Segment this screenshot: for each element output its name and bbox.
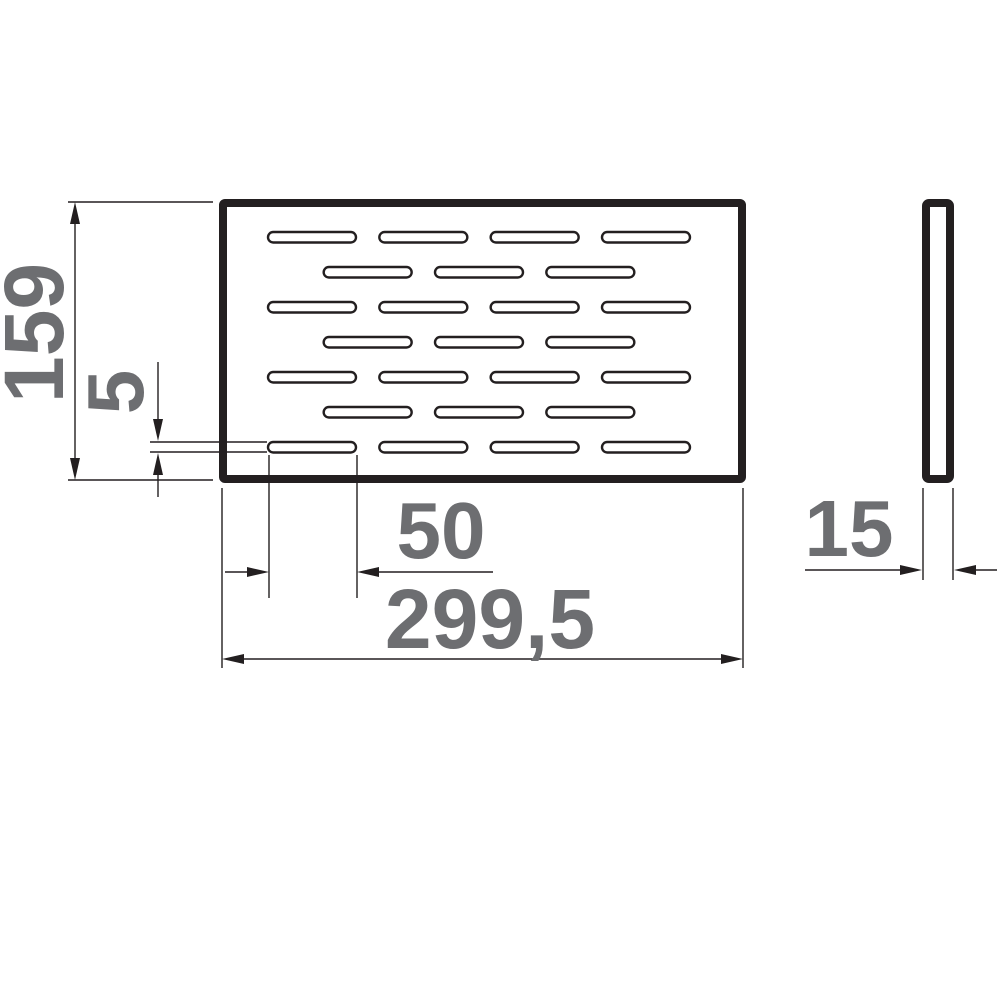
slot <box>602 302 690 313</box>
slot <box>324 267 412 278</box>
front-view <box>223 203 742 479</box>
slot <box>268 232 356 243</box>
slot <box>546 337 634 348</box>
arrowhead-left-icon <box>357 567 379 577</box>
slot <box>491 442 579 453</box>
arrowhead-up-icon <box>153 453 163 475</box>
slot <box>324 407 412 418</box>
slot <box>546 407 634 418</box>
slot <box>602 372 690 383</box>
arrowhead-down-icon <box>153 419 163 441</box>
dim-label-height: 159 <box>0 263 69 403</box>
slot <box>379 232 467 243</box>
dim-label-depth: 15 <box>789 494 909 564</box>
dim-label-total-width: 299,5 <box>370 584 610 654</box>
slot <box>268 372 356 383</box>
arrowhead-right-icon <box>721 654 743 664</box>
slot <box>491 302 579 313</box>
slot <box>435 267 523 278</box>
arrowhead-left-icon <box>954 565 976 575</box>
slot <box>602 232 690 243</box>
arrowhead-down-icon <box>70 458 80 480</box>
dim-label-slot-height: 5 <box>81 352 151 432</box>
arrowhead-right-icon <box>900 565 922 575</box>
slot <box>435 337 523 348</box>
slot <box>546 267 634 278</box>
slot <box>379 372 467 383</box>
side-view <box>926 203 950 479</box>
technical-drawing-canvas: 159 5 50 299,5 15 <box>0 0 1000 998</box>
slot <box>602 442 690 453</box>
slot <box>491 372 579 383</box>
slot <box>268 442 356 453</box>
arrowhead-right-icon <box>247 567 269 577</box>
dim-height-159 <box>68 202 213 480</box>
slot <box>379 302 467 313</box>
slot <box>491 232 579 243</box>
side-view-outline <box>926 203 950 479</box>
slot <box>379 442 467 453</box>
slot <box>268 302 356 313</box>
arrowhead-left-icon <box>222 654 244 664</box>
dim-label-slot-width: 50 <box>371 496 511 566</box>
arrowhead-up-icon <box>70 202 80 224</box>
slot <box>324 337 412 348</box>
slot <box>435 407 523 418</box>
